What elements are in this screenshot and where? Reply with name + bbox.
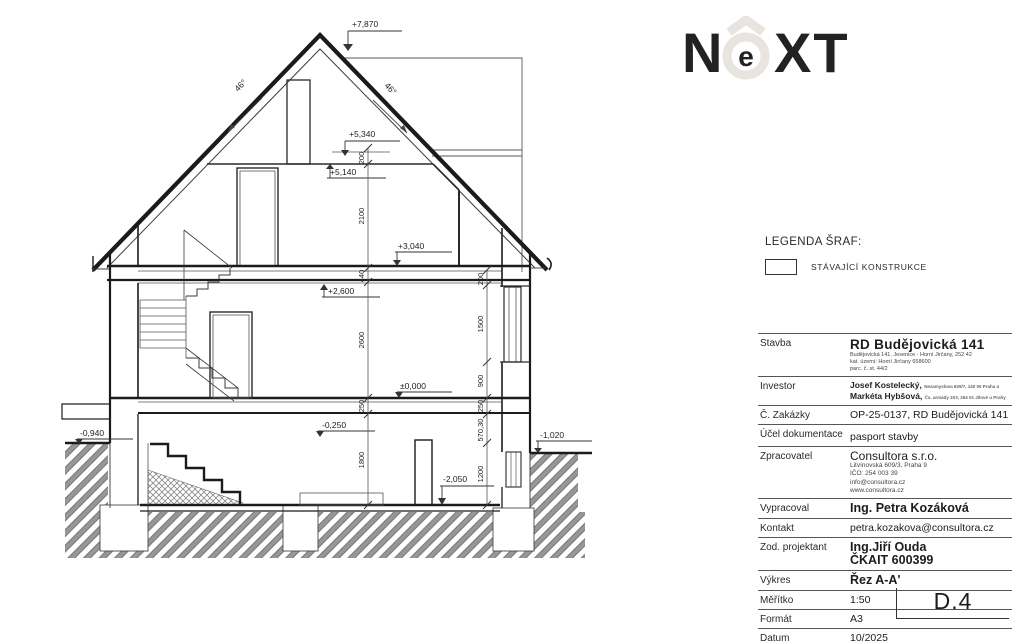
row-zakazky: Č. Zakázky OP-25-0137, RD Budějovická 14… [758,405,1012,424]
svg-text:900: 900 [476,375,485,388]
logo-letter-n: N [682,21,722,82]
svg-text:2600: 2600 [357,332,366,349]
row-kontakt: Kontakt petra.kozakova@consultora.cz [758,518,1012,537]
svg-text:-0,250: -0,250 [322,420,346,430]
svg-text:1200: 1200 [476,466,485,483]
row-zpracovatel: Zpracovatel Consultora s.r.o. Litvínovsk… [758,446,1012,498]
row-datum: Datum 10/2025 [758,628,1012,642]
svg-text:440: 440 [357,270,366,283]
svg-text:1500: 1500 [476,316,485,333]
svg-text:+2,600: +2,600 [328,286,355,296]
background-gable [342,58,522,272]
next-logo: N e XT [682,16,862,82]
chimney [287,80,310,164]
svg-text:250: 250 [357,400,366,413]
svg-text:200: 200 [357,152,366,165]
logo-roof-icon [729,20,763,32]
logo-letter-e: e [738,41,754,72]
drawing-title: Řez A-A' [850,574,1012,587]
date-value: 10/2025 [850,632,1012,642]
section-drawing: 46° 46° +7,870 +5,340 +5,140 [0,0,660,642]
svg-text:-1,020: -1,020 [540,430,564,440]
row-vypracoval: Vypracoval Ing. Petra Kozáková [758,498,1012,518]
level-attic-floor: +3,040 [393,241,452,266]
ground-floor-door [210,312,252,398]
svg-text:200: 200 [476,273,485,286]
project-name: RD Budějovická 141 [850,337,1012,352]
level-gf-floor: ±0,000 [395,381,452,398]
row-ucel: Účel dokumentace pasport stavby [758,424,1012,446]
dim-chain-center: 200 2100 440 2600 250 1800 [357,144,372,509]
window-ground-floor [500,286,530,362]
svg-text:+5,140: +5,140 [330,167,357,177]
level-markers: +7,870 +5,340 +5,140 +3,040 [75,19,592,505]
level-basement-floor: -2,050 [438,474,494,505]
level-gf-slab: -0,250 [316,420,375,437]
contact-email: petra.kozakova@consultora.cz [850,522,1012,534]
legend-swatch [765,259,797,275]
dim-chain-right: 200 1500 900 250 570,30 1200 [476,266,491,509]
row-stavba: Stavba RD Budějovická 141 Budějovická 14… [758,333,1012,376]
stair-treads [140,296,186,358]
attic-floor-slab [107,266,530,283]
svg-text:1800: 1800 [357,452,366,469]
svg-text:-0,940: -0,940 [80,428,104,438]
window-basement [506,452,521,487]
interior-stairs [140,230,238,401]
drawing-number: D.4 [934,588,973,615]
svg-text:+7,870: +7,870 [352,19,379,29]
legend: LEGENDA ŠRAF: STÁVAJÍCÍ KONSTRUKCE [765,236,1015,275]
legend-title: LEGENDA ŠRAF: [765,236,1015,248]
row-investor: Investor Josef Kostelecký, Nezamyslova 8… [758,376,1012,405]
svg-text:2100: 2100 [357,208,366,225]
author-name: Ing. Petra Kozáková [850,502,1012,515]
svg-text:+3,040: +3,040 [398,241,425,251]
legend-item-label: STÁVAJÍCÍ KONSTRUKCE [811,262,927,272]
sheet: 46° 46° +7,870 +5,340 +5,140 [0,0,1024,642]
level-terrain-right: -1,020 [534,430,592,453]
basement-pillar [415,440,432,505]
svg-text:±0,000: ±0,000 [400,381,426,391]
level-attic-ceiling: +5,140 [326,164,386,178]
level-terrain-left: -0,940 [75,428,133,444]
svg-text:250: 250 [476,400,485,413]
row-projektant: Zod. projektant Ing.Jiří Ouda ČKAIT 6003… [758,537,1012,570]
roof-angle-right: 46° [383,80,399,96]
svg-text:+5,340: +5,340 [349,129,376,139]
logo-letters-xt: XT [774,21,850,82]
svg-text:570,30: 570,30 [476,419,485,442]
level-ridge: +7,870 [343,19,402,51]
roof-angles: 46° 46° [228,77,407,133]
ground-floor-slab [62,398,530,419]
svg-text:-2,050: -2,050 [443,474,467,484]
roof-angle-left: 46° [232,77,248,93]
roof [93,35,551,272]
drawing-number-box: D.4 [896,588,1009,619]
level-gf-ceiling: +2,600 [320,284,380,297]
